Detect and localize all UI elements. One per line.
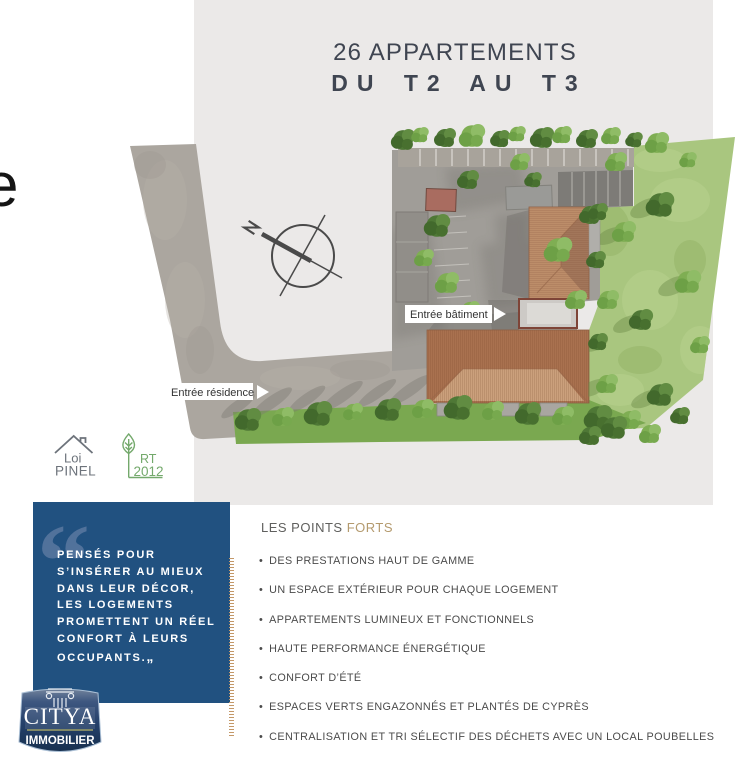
svg-text:Entrée bâtiment: Entrée bâtiment [410,309,488,321]
svg-text:CITYA: CITYA [24,704,97,729]
svg-text:Entrée résidence: Entrée résidence [171,387,254,399]
svg-text:IMMOBILIER: IMMOBILIER [26,735,96,747]
svg-text:2012: 2012 [134,464,164,479]
svg-text:PINEL: PINEL [55,464,96,479]
